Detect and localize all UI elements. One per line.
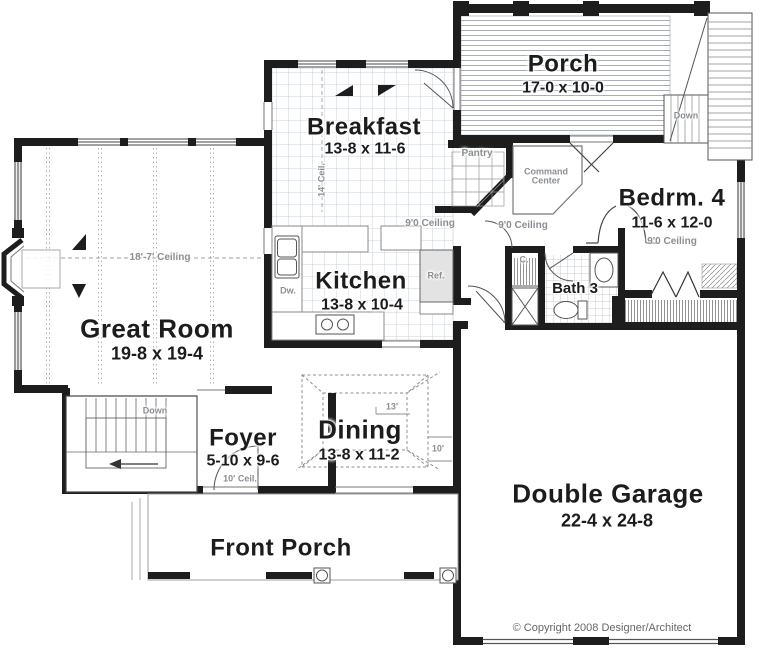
bath3-label: Bath 3 — [552, 281, 598, 297]
pantry-label: Pantry — [461, 149, 492, 160]
kitchen-sink — [275, 236, 299, 278]
foyer-label: Foyer — [209, 425, 277, 450]
garage-label: Double Garage — [512, 480, 703, 507]
bedroom4-label: Bedrm. 4 — [619, 185, 726, 210]
great-room-north-windows — [78, 138, 236, 146]
kitchen-ceiling-note: 9'0 Ceiling — [405, 219, 455, 230]
floor-plan: Porch 17-0 x 10-0 Breakfast 13-8 x 11-6 … — [0, 0, 760, 663]
kitchen-label: Kitchen — [315, 268, 407, 293]
bedroom4-ceiling-note: 9'0 Ceiling — [647, 237, 697, 248]
window-seat-hatch — [702, 264, 737, 288]
kitchen-dims: 13-8 x 10-4 — [321, 298, 403, 315]
linen-closet — [512, 286, 538, 325]
kitchen-peninsula — [381, 226, 421, 250]
foyer-ceiling-note: 10' Ceil. — [223, 474, 257, 483]
great-room-ceiling-note: 18'-7' Ceiling — [130, 253, 191, 264]
pantry-shelves — [452, 152, 504, 207]
dining-dims: 13-8 x 11-2 — [319, 448, 400, 465]
closet-label: C. — [520, 255, 529, 264]
pantry-corner-wall — [472, 176, 509, 214]
cooktop — [316, 315, 354, 334]
bedroom4-dims: 11-6 x 12-0 — [632, 216, 713, 233]
foyer-dims: 5-10 x 9-6 — [207, 454, 280, 471]
tray-10-note: 10' — [432, 444, 444, 453]
great-room-dims: 19-8 x 19-4 — [111, 345, 203, 364]
tray-13-note: 13' — [386, 402, 398, 411]
breakfast-label: Breakfast — [307, 114, 421, 139]
porch-stairs-down-label: Down — [674, 111, 699, 120]
bedroom-east-window — [737, 182, 745, 238]
bifold-closet-doors — [650, 272, 699, 297]
breakfast-dims: 13-8 x 11-6 — [325, 142, 406, 159]
dining-label: Dining — [318, 416, 402, 443]
dishwasher-label: Dw. — [280, 286, 296, 295]
command-center-label: Command Center — [517, 168, 575, 187]
hall-ceiling-note: 9'0 Ceiling — [498, 221, 548, 232]
porch-label: Porch — [528, 51, 599, 76]
bedroom-closet-hatch — [620, 300, 737, 322]
copyright-notice: © Copyright 2008 Designer/Architect — [513, 623, 692, 635]
porch-dims: 17-0 x 10-0 — [522, 81, 604, 98]
garage-entry-door — [468, 286, 505, 323]
great-room-label: Great Room — [80, 315, 234, 342]
garage-dims: 22-4 x 24-8 — [561, 512, 653, 531]
great-room-west-windows — [14, 162, 22, 370]
refrigerator-label: Ref. — [427, 271, 444, 280]
toilet — [554, 301, 587, 319]
interior-stairs — [66, 396, 197, 492]
breakfast-ceiling-note: 14' Ceil. — [317, 163, 326, 197]
kitchen-island — [302, 226, 368, 252]
exterior-stairs — [664, 13, 752, 160]
front-porch-label: Front Porch — [210, 535, 352, 560]
fireplace — [4, 240, 60, 298]
stairs-down-label: Down — [143, 406, 168, 415]
